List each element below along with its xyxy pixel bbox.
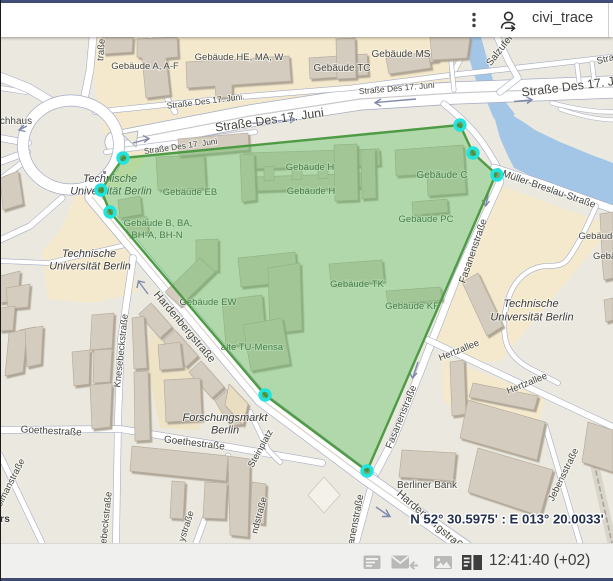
svg-text:Gebäude HE, MA, W: Gebäude HE, MA, W <box>195 52 284 63</box>
svg-text:traße: traße <box>95 38 108 61</box>
svg-text:Berliner Bank: Berliner Bank <box>397 480 458 491</box>
svg-text:Gebäude: Gebäude <box>578 231 613 242</box>
svg-text:chhaus: chhaus <box>0 116 32 127</box>
svg-text:Gebäude A, A-F: Gebäude A, A-F <box>111 61 179 72</box>
svg-text:Technische: Technische <box>62 248 116 260</box>
svg-text:N 52° 30.5975' : E 013° 20.003: N 52° 30.5975' : E 013° 20.0033' <box>410 512 604 527</box>
svg-text:Universität Berlin: Universität Berlin <box>49 261 131 273</box>
svg-text:Gebäude: Gebäude <box>593 251 613 262</box>
svg-text:Universität Berlin: Universität Berlin <box>490 312 573 324</box>
svg-text:rs: rs <box>0 513 10 525</box>
svg-text:Forschungsmarkt: Forschungsmarkt <box>183 412 269 424</box>
svg-text:Berlin: Berlin <box>211 425 239 437</box>
svg-text:Gebäude MS: Gebäude MS <box>372 49 431 60</box>
svg-text:Technische: Technische <box>503 298 558 310</box>
svg-text:Gebäude TC: Gebäude TC <box>313 63 370 74</box>
